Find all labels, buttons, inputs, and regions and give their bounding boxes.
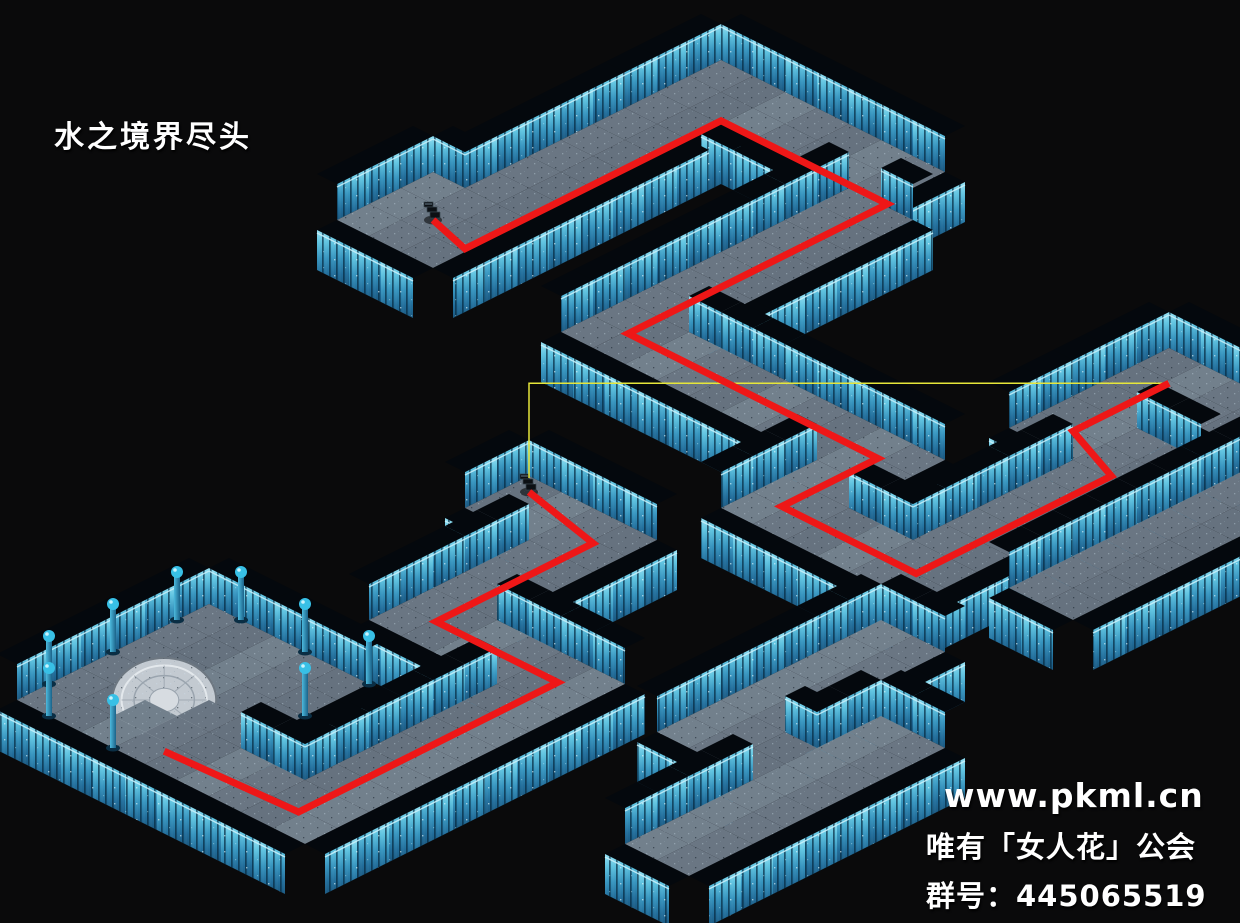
watermark: www.pkml.cn 唯有「女人花」公会 群号：445065519: [926, 776, 1207, 915]
watermark-group-number: 群号：445065519: [926, 873, 1207, 915]
map-screenshot: 水之境界尽头 www.pkml.cn 唯有「女人花」公会 群号：44506551…: [0, 0, 1240, 923]
watermark-site-url: www.pkml.cn: [944, 776, 1207, 815]
watermark-guild-name: 唯有「女人花」公会: [926, 824, 1207, 866]
map-title: 水之境界尽头: [54, 112, 252, 156]
